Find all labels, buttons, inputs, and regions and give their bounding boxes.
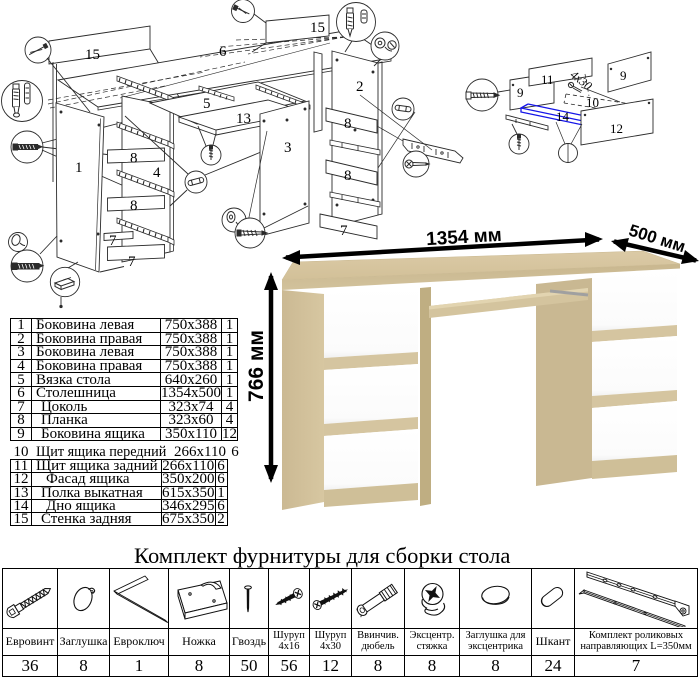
svg-text:8: 8 [344, 168, 352, 184]
svg-text:11: 11 [541, 72, 554, 87]
svg-text:7: 7 [128, 254, 136, 270]
svg-text:8: 8 [344, 116, 352, 132]
svg-text:5: 5 [203, 96, 211, 112]
svg-text:2: 2 [356, 79, 364, 95]
svg-text:766 мм: 766 мм [245, 330, 268, 402]
svg-text:8: 8 [130, 198, 138, 214]
svg-text:9: 9 [620, 68, 627, 83]
svg-text:15: 15 [310, 20, 325, 36]
svg-text:7: 7 [340, 223, 348, 239]
svg-text:9: 9 [517, 85, 524, 100]
svg-text:10: 10 [586, 95, 599, 110]
svg-text:1354 мм: 1354 мм [426, 225, 503, 250]
svg-text:8: 8 [130, 151, 138, 167]
svg-text:1: 1 [75, 160, 83, 176]
svg-text:14: 14 [556, 109, 570, 124]
svg-text:13: 13 [236, 111, 251, 127]
svg-text:12: 12 [610, 121, 623, 136]
svg-text:4: 4 [153, 165, 161, 181]
svg-text:15: 15 [85, 47, 100, 63]
svg-text:3: 3 [284, 140, 292, 156]
